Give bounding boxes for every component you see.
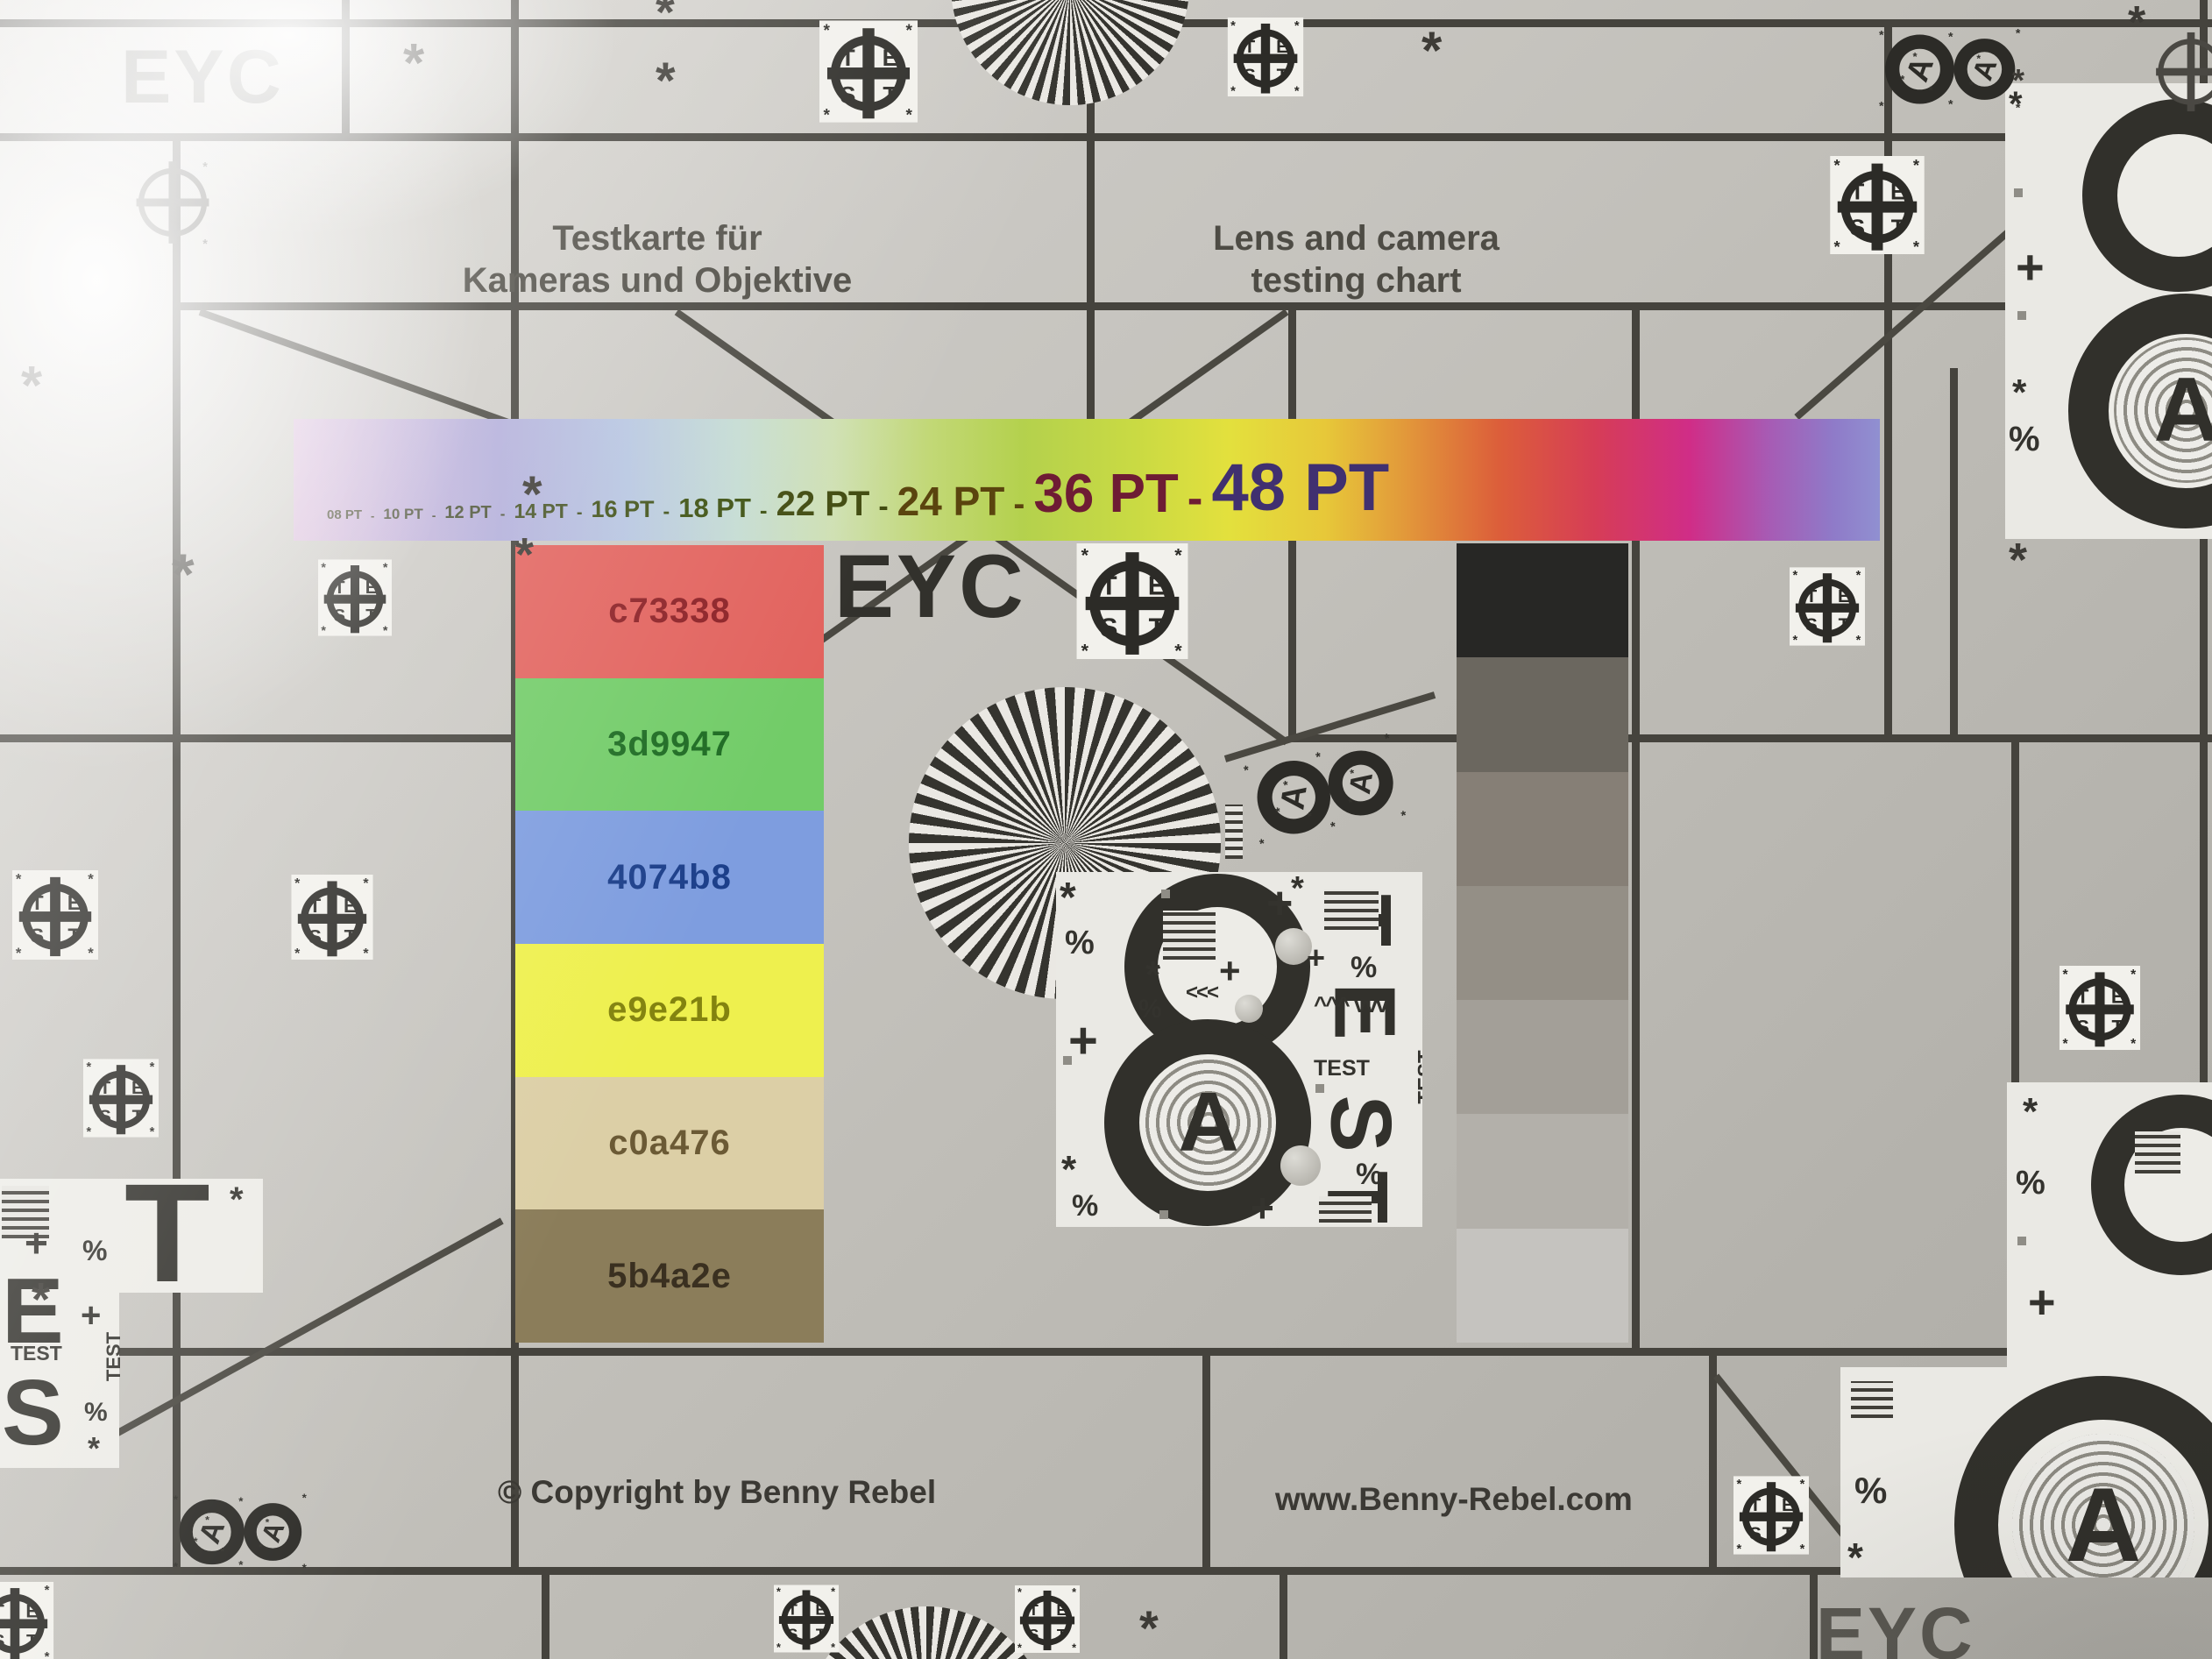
color-patch-label: c73338 — [608, 592, 730, 631]
plus-icon: + — [2016, 243, 2045, 292]
font-size-separator: - — [878, 492, 888, 521]
color-patch: e9e21b — [515, 944, 824, 1077]
test-emblem — [819, 20, 918, 123]
color-patch: c0a476 — [515, 1077, 824, 1210]
hatch-pattern — [1851, 1381, 1893, 1418]
font-size-separator: - — [577, 504, 583, 521]
title-english-line1: Lens and camera — [1117, 217, 1595, 259]
grayscale-step-wedge — [1457, 543, 1628, 1343]
percent-icon: % — [1854, 1472, 1887, 1509]
crosshair-marker — [133, 149, 212, 256]
calibration-square — [1063, 1056, 1072, 1065]
percent-icon: % — [1065, 926, 1095, 960]
test-word-rotated: TEST — [104, 1332, 124, 1381]
grayscale-step — [1457, 657, 1628, 771]
title-german-line2: Kameras und Objektive — [403, 259, 911, 301]
copyright-text: © Copyright by Benny Rebel — [498, 1474, 936, 1511]
color-patch: 5b4a2e — [515, 1209, 824, 1343]
color-patch-label: c0a476 — [608, 1124, 730, 1163]
letter-a: A — [2153, 358, 2212, 463]
calibration-square — [1315, 1084, 1324, 1093]
title-german-line1: Testkarte für — [403, 217, 911, 259]
color-patch: c73338 — [515, 545, 824, 678]
test-word: TEST — [1314, 1058, 1370, 1080]
color-patch: 4074b8 — [515, 811, 824, 944]
font-size-separator: - — [432, 509, 436, 521]
siemens-star-bottom — [804, 1606, 1049, 1659]
test-emblem — [1225, 18, 1306, 96]
asterisk-icon: * — [2012, 374, 2026, 411]
asterisk-mark: * — [656, 56, 676, 107]
calibration-square — [1159, 1210, 1168, 1219]
resolution-test-panel-right-top: * + A * % — [2005, 83, 2212, 539]
percent-icon: % — [1356, 1159, 1382, 1189]
plus-icon: + — [1266, 881, 1293, 926]
asterisk-mark: * — [2012, 65, 2024, 96]
color-patch-column: c733383d99474074b8e9e21bc0a4765b4a2e — [515, 545, 824, 1343]
asterisk-icon: * — [1061, 1151, 1076, 1189]
test-emblem — [1015, 1577, 1080, 1659]
test-emblem — [1076, 543, 1188, 659]
hatch-pattern — [1324, 890, 1379, 930]
percent-icon: % — [2009, 422, 2040, 457]
test-emblem — [289, 875, 375, 960]
test-emblem — [83, 1057, 159, 1139]
hatch-pattern — [1163, 911, 1216, 960]
asterisk-mark: * — [1421, 25, 1442, 77]
asterisk-icon: * — [1847, 1537, 1863, 1577]
font-size-separator: - — [1013, 487, 1024, 521]
panel-letter-s: S — [2, 1366, 64, 1459]
asterisk-mark: * — [522, 470, 542, 521]
figure-eight-top-ring — [2082, 99, 2212, 292]
grid-line — [0, 133, 2212, 141]
calibration-square — [1161, 890, 1170, 898]
grayscale-step — [1457, 543, 1628, 657]
arrows-down-icon: vvv — [1354, 993, 1386, 1016]
crosshair-marker — [2145, 26, 2212, 117]
panel-letter-t: T — [124, 1179, 210, 1303]
plus-icon: + — [1307, 942, 1325, 974]
resolution-test-panel-right-bottom-lower: A % * — [1840, 1367, 2212, 1577]
asterisk-mark: * — [2128, 0, 2145, 46]
font-size-separator: - — [760, 499, 768, 521]
test-emblem — [318, 549, 392, 647]
font-size-separator: - — [371, 510, 374, 521]
test-emblem — [2049, 966, 2151, 1050]
test-emblem — [7, 870, 103, 960]
plus-icon: + — [2028, 1279, 2056, 1326]
grayscale-step — [1457, 886, 1628, 1000]
asterisk-icon: * — [2023, 1093, 2038, 1131]
arrows-up-icon: ^^^ — [1314, 993, 1349, 1016]
asterisk-mark: * — [656, 0, 675, 37]
test-emblem — [1830, 156, 1925, 254]
percent-icon: % — [2016, 1166, 2045, 1200]
test-word: TEST — [11, 1344, 62, 1364]
font-size-label: 10 PT — [383, 507, 422, 521]
asterisk-mark: * — [403, 37, 424, 91]
asterisk-mark: * — [172, 545, 195, 603]
grid-line — [542, 1567, 549, 1659]
font-size-separator: - — [500, 507, 506, 521]
asterisk-icon: * — [230, 1182, 244, 1217]
plus-icon: + — [25, 1223, 48, 1263]
plus-icon: + — [1251, 1188, 1274, 1227]
title-english-line2: testing chart — [1117, 259, 1595, 301]
grid-line — [1884, 19, 1892, 734]
plus-icon: + — [1219, 953, 1241, 989]
resolution-test-panel: * % * + * % + <<< + + A * % + T E ^^^ vv… — [1056, 872, 1422, 1227]
grayscale-step — [1457, 1000, 1628, 1114]
grid-line — [0, 1348, 2212, 1356]
asterisk-mark: * — [32, 1276, 50, 1323]
asterisk-mark: * — [1139, 1604, 1159, 1653]
panel-letter-s: S — [1319, 1095, 1405, 1152]
font-size-label: 24 PT — [897, 481, 1005, 521]
calibration-square — [2017, 311, 2026, 320]
hatch-pattern — [1319, 1196, 1372, 1223]
percent-icon: % — [1072, 1191, 1098, 1221]
color-patch: 3d9947 — [515, 678, 824, 812]
font-size-label: 22 PT — [776, 486, 870, 521]
font-size-separator: - — [663, 501, 670, 521]
gray-ball — [1280, 1145, 1321, 1186]
eyc-logo-center: EYC — [834, 542, 1026, 631]
grayscale-step — [1457, 1229, 1628, 1343]
test-emblem — [1790, 559, 1865, 654]
font-size-label: 12 PT — [444, 504, 491, 521]
gray-ball — [1235, 995, 1263, 1023]
grid-line — [1288, 734, 2212, 742]
percent-icon: % — [1138, 996, 1162, 1023]
color-patch-label: e9e21b — [607, 990, 732, 1030]
grid-line — [1950, 368, 1958, 734]
siemens-star-top — [951, 0, 1189, 105]
color-patch-label: 4074b8 — [607, 858, 732, 897]
test-emblem — [774, 1575, 839, 1659]
grid-line — [1202, 1348, 1210, 1569]
figure-eight-a-emblem — [1877, 25, 2028, 114]
plus-icon: + — [1068, 1016, 1098, 1067]
concentric-circles: A — [1144, 1058, 1273, 1188]
grid-line — [342, 0, 350, 133]
lens-test-chart-photo: * * * * T E S T * * — [0, 0, 2212, 1659]
diagonal-line — [199, 308, 510, 426]
title-english: Lens and camera testing chart — [1117, 217, 1595, 301]
percent-icon: % — [1351, 953, 1377, 982]
font-size-separator: - — [1188, 475, 1203, 521]
figure-eight-a-emblem — [172, 1488, 314, 1576]
arrows-icon: <<< — [1186, 982, 1217, 1003]
font-size-label: 08 PT — [327, 508, 362, 521]
calibration-square — [2014, 188, 2023, 197]
grid-line — [1280, 1567, 1287, 1659]
asterisk-icon: * — [1145, 956, 1160, 995]
color-patch-label: 3d9947 — [607, 725, 732, 764]
font-size-label: 36 PT — [1033, 467, 1178, 521]
test-word-rotated: TEST — [1416, 1050, 1422, 1103]
asterisk-icon: * — [1060, 877, 1076, 919]
letter-a: A — [1178, 1074, 1238, 1171]
grayscale-step — [1457, 772, 1628, 886]
asterisk-mark: * — [21, 359, 42, 414]
font-size-label: 48 PT — [1211, 455, 1389, 521]
eyc-logo-bottom-right: EYC — [1816, 1597, 1975, 1659]
grayscale-step — [1457, 1114, 1628, 1228]
test-emblem — [1733, 1464, 1809, 1567]
percent-icon: % — [82, 1237, 107, 1265]
color-patch-label: 5b4a2e — [607, 1257, 732, 1296]
website-text: www.Benny-Rebel.com — [1275, 1481, 1633, 1518]
font-size-label: 16 PT — [591, 498, 654, 521]
figure-eight-top-ring — [2091, 1095, 2212, 1275]
asterisk-icon: * — [88, 1433, 100, 1464]
letter-a: A — [2066, 1464, 2142, 1577]
grid-line — [173, 302, 2212, 310]
test-emblem — [0, 1582, 54, 1659]
calibration-square — [2017, 1237, 2026, 1245]
title-german: Testkarte für Kameras und Objektive — [403, 217, 911, 301]
plus-icon: + — [81, 1298, 101, 1333]
eyc-logo-top-left: EYC — [121, 39, 284, 115]
percent-icon: % — [84, 1400, 108, 1426]
asterisk-mark: * — [2009, 536, 2027, 584]
font-size-label: 18 PT — [678, 494, 751, 521]
resolution-test-panel-right-bottom-upper: * % + — [2007, 1082, 2212, 1373]
asterisk-mark: * — [515, 531, 534, 578]
hatch-pattern — [1225, 805, 1243, 859]
hatch-pattern — [2135, 1131, 2180, 1173]
